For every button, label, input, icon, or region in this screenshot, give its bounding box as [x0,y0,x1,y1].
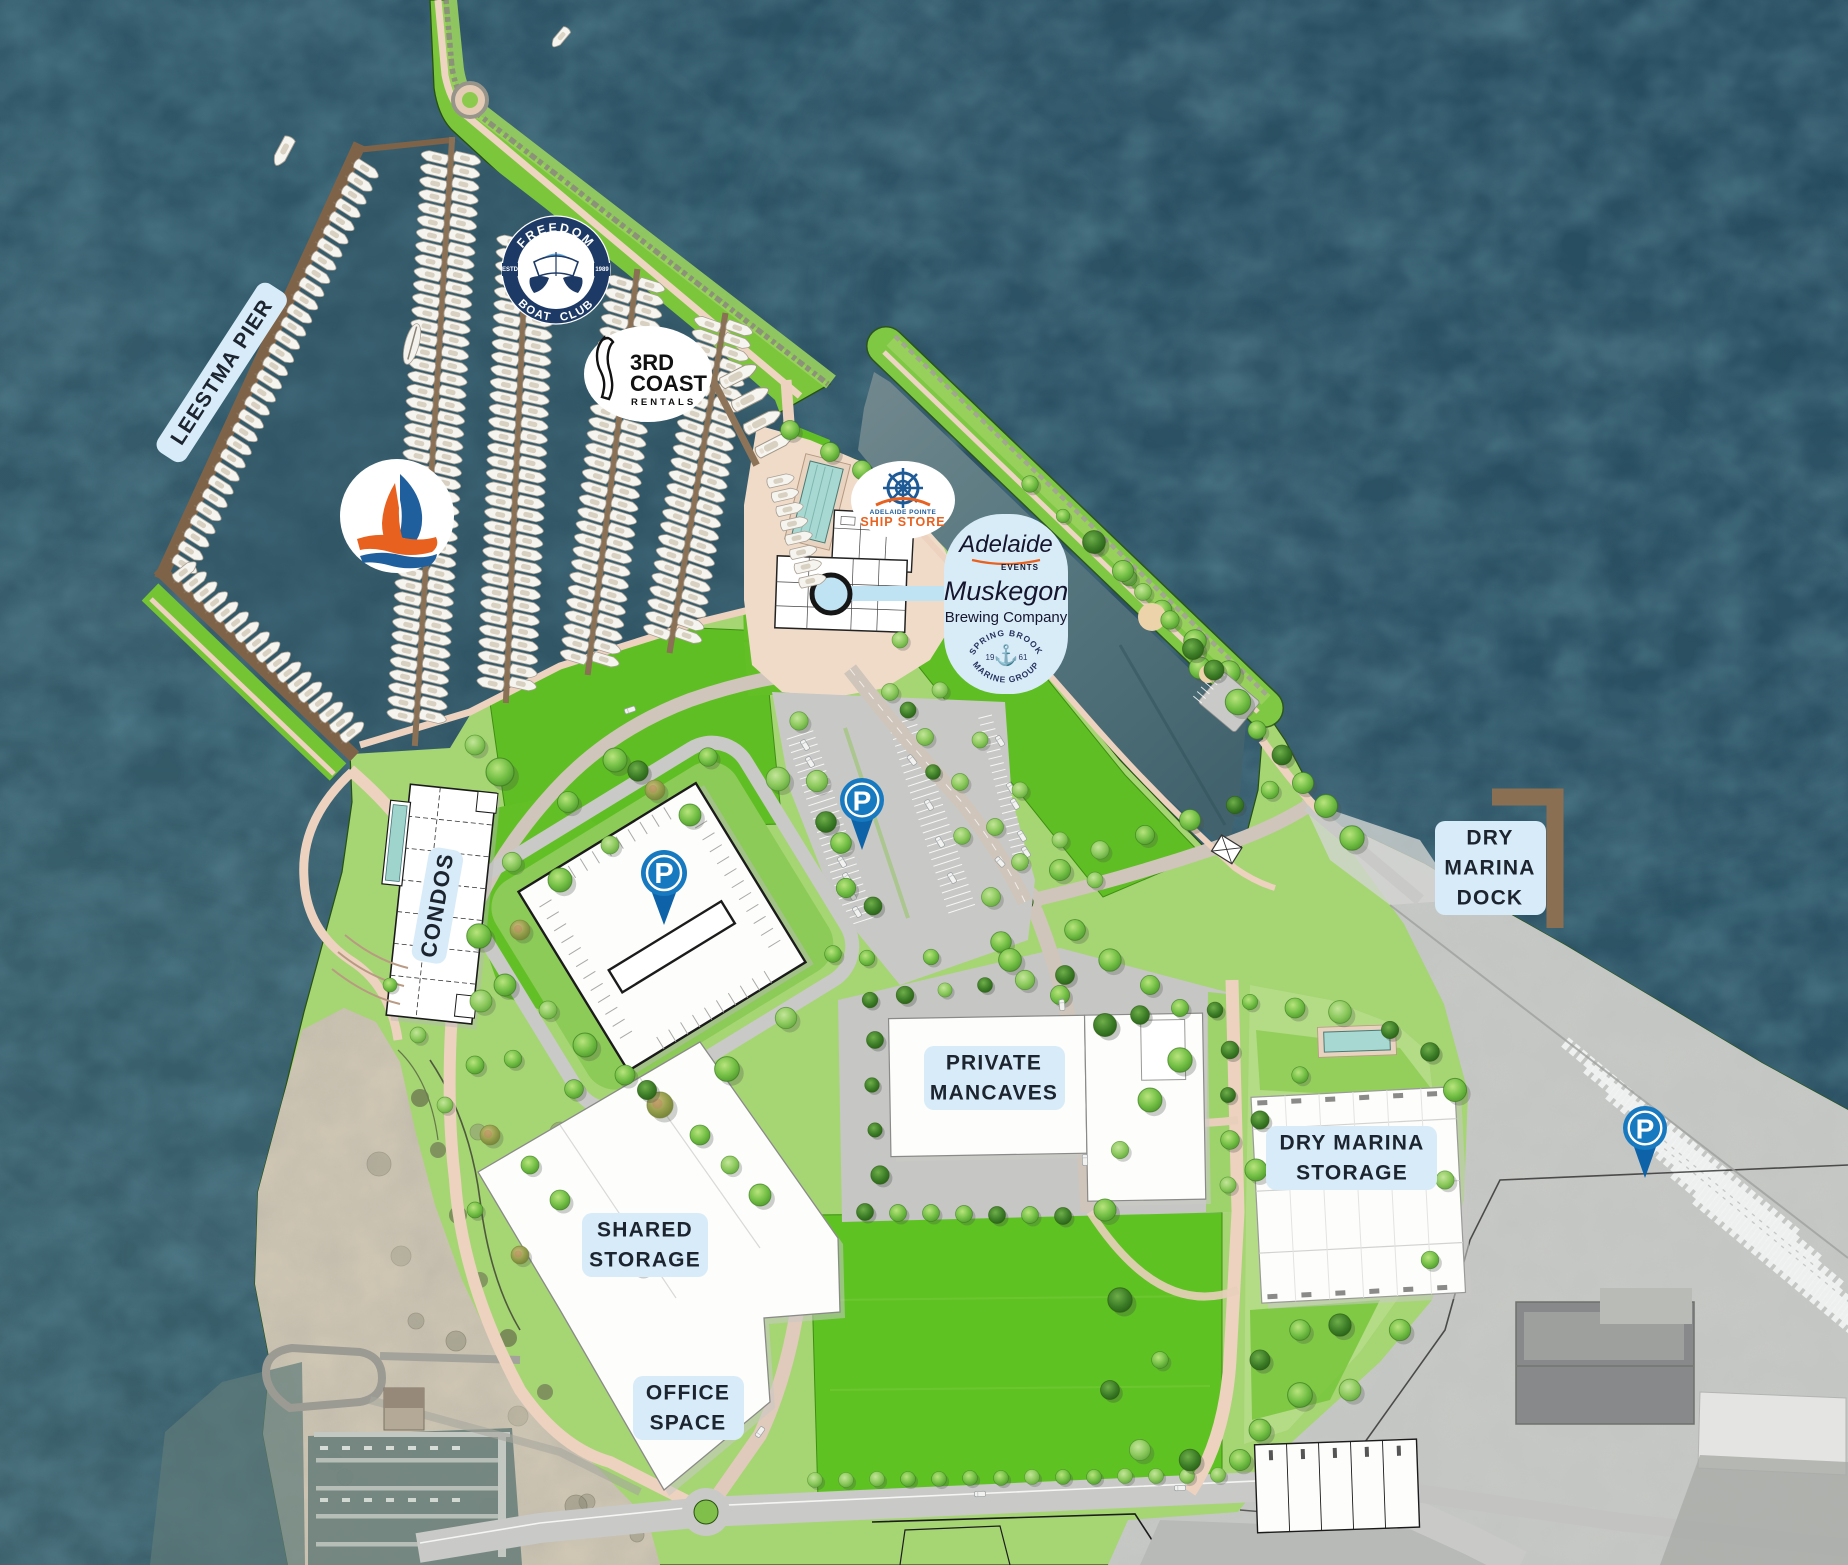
svg-text:MARINA: MARINA [1444,857,1535,880]
svg-text:PRIVATE: PRIVATE [946,1052,1042,1075]
svg-text:EVENTS: EVENTS [1001,563,1039,572]
svg-text:19: 19 [986,653,995,662]
svg-text:Muskegon: Muskegon [944,576,1069,606]
svg-text:P: P [654,858,673,890]
svg-text:DRY: DRY [1466,827,1513,850]
svg-text:61: 61 [1019,653,1028,662]
svg-text:Adelaide: Adelaide [957,531,1052,558]
svg-text:OFFICE: OFFICE [646,1382,730,1405]
svg-text:DOCK: DOCK [1457,887,1524,910]
svg-text:P: P [853,786,872,817]
svg-text:1989: 1989 [595,267,609,273]
svg-text:P: P [1636,1114,1655,1145]
svg-text:COAST: COAST [630,371,708,396]
svg-text:DRY MARINA: DRY MARINA [1279,1132,1424,1155]
svg-text:SHIP STORE: SHIP STORE [860,515,945,529]
svg-text:⚓: ⚓ [994,643,1019,667]
svg-text:RENTALS: RENTALS [631,397,696,408]
svg-text:STORAGE: STORAGE [1296,1162,1408,1185]
svg-text:Brewing Company: Brewing Company [945,609,1068,626]
svg-text:SPACE: SPACE [650,1412,727,1435]
svg-text:MANCAVES: MANCAVES [930,1082,1058,1105]
svg-text:STORAGE: STORAGE [589,1249,701,1272]
svg-text:SHARED: SHARED [597,1219,693,1242]
svg-text:ESTD: ESTD [502,267,519,273]
